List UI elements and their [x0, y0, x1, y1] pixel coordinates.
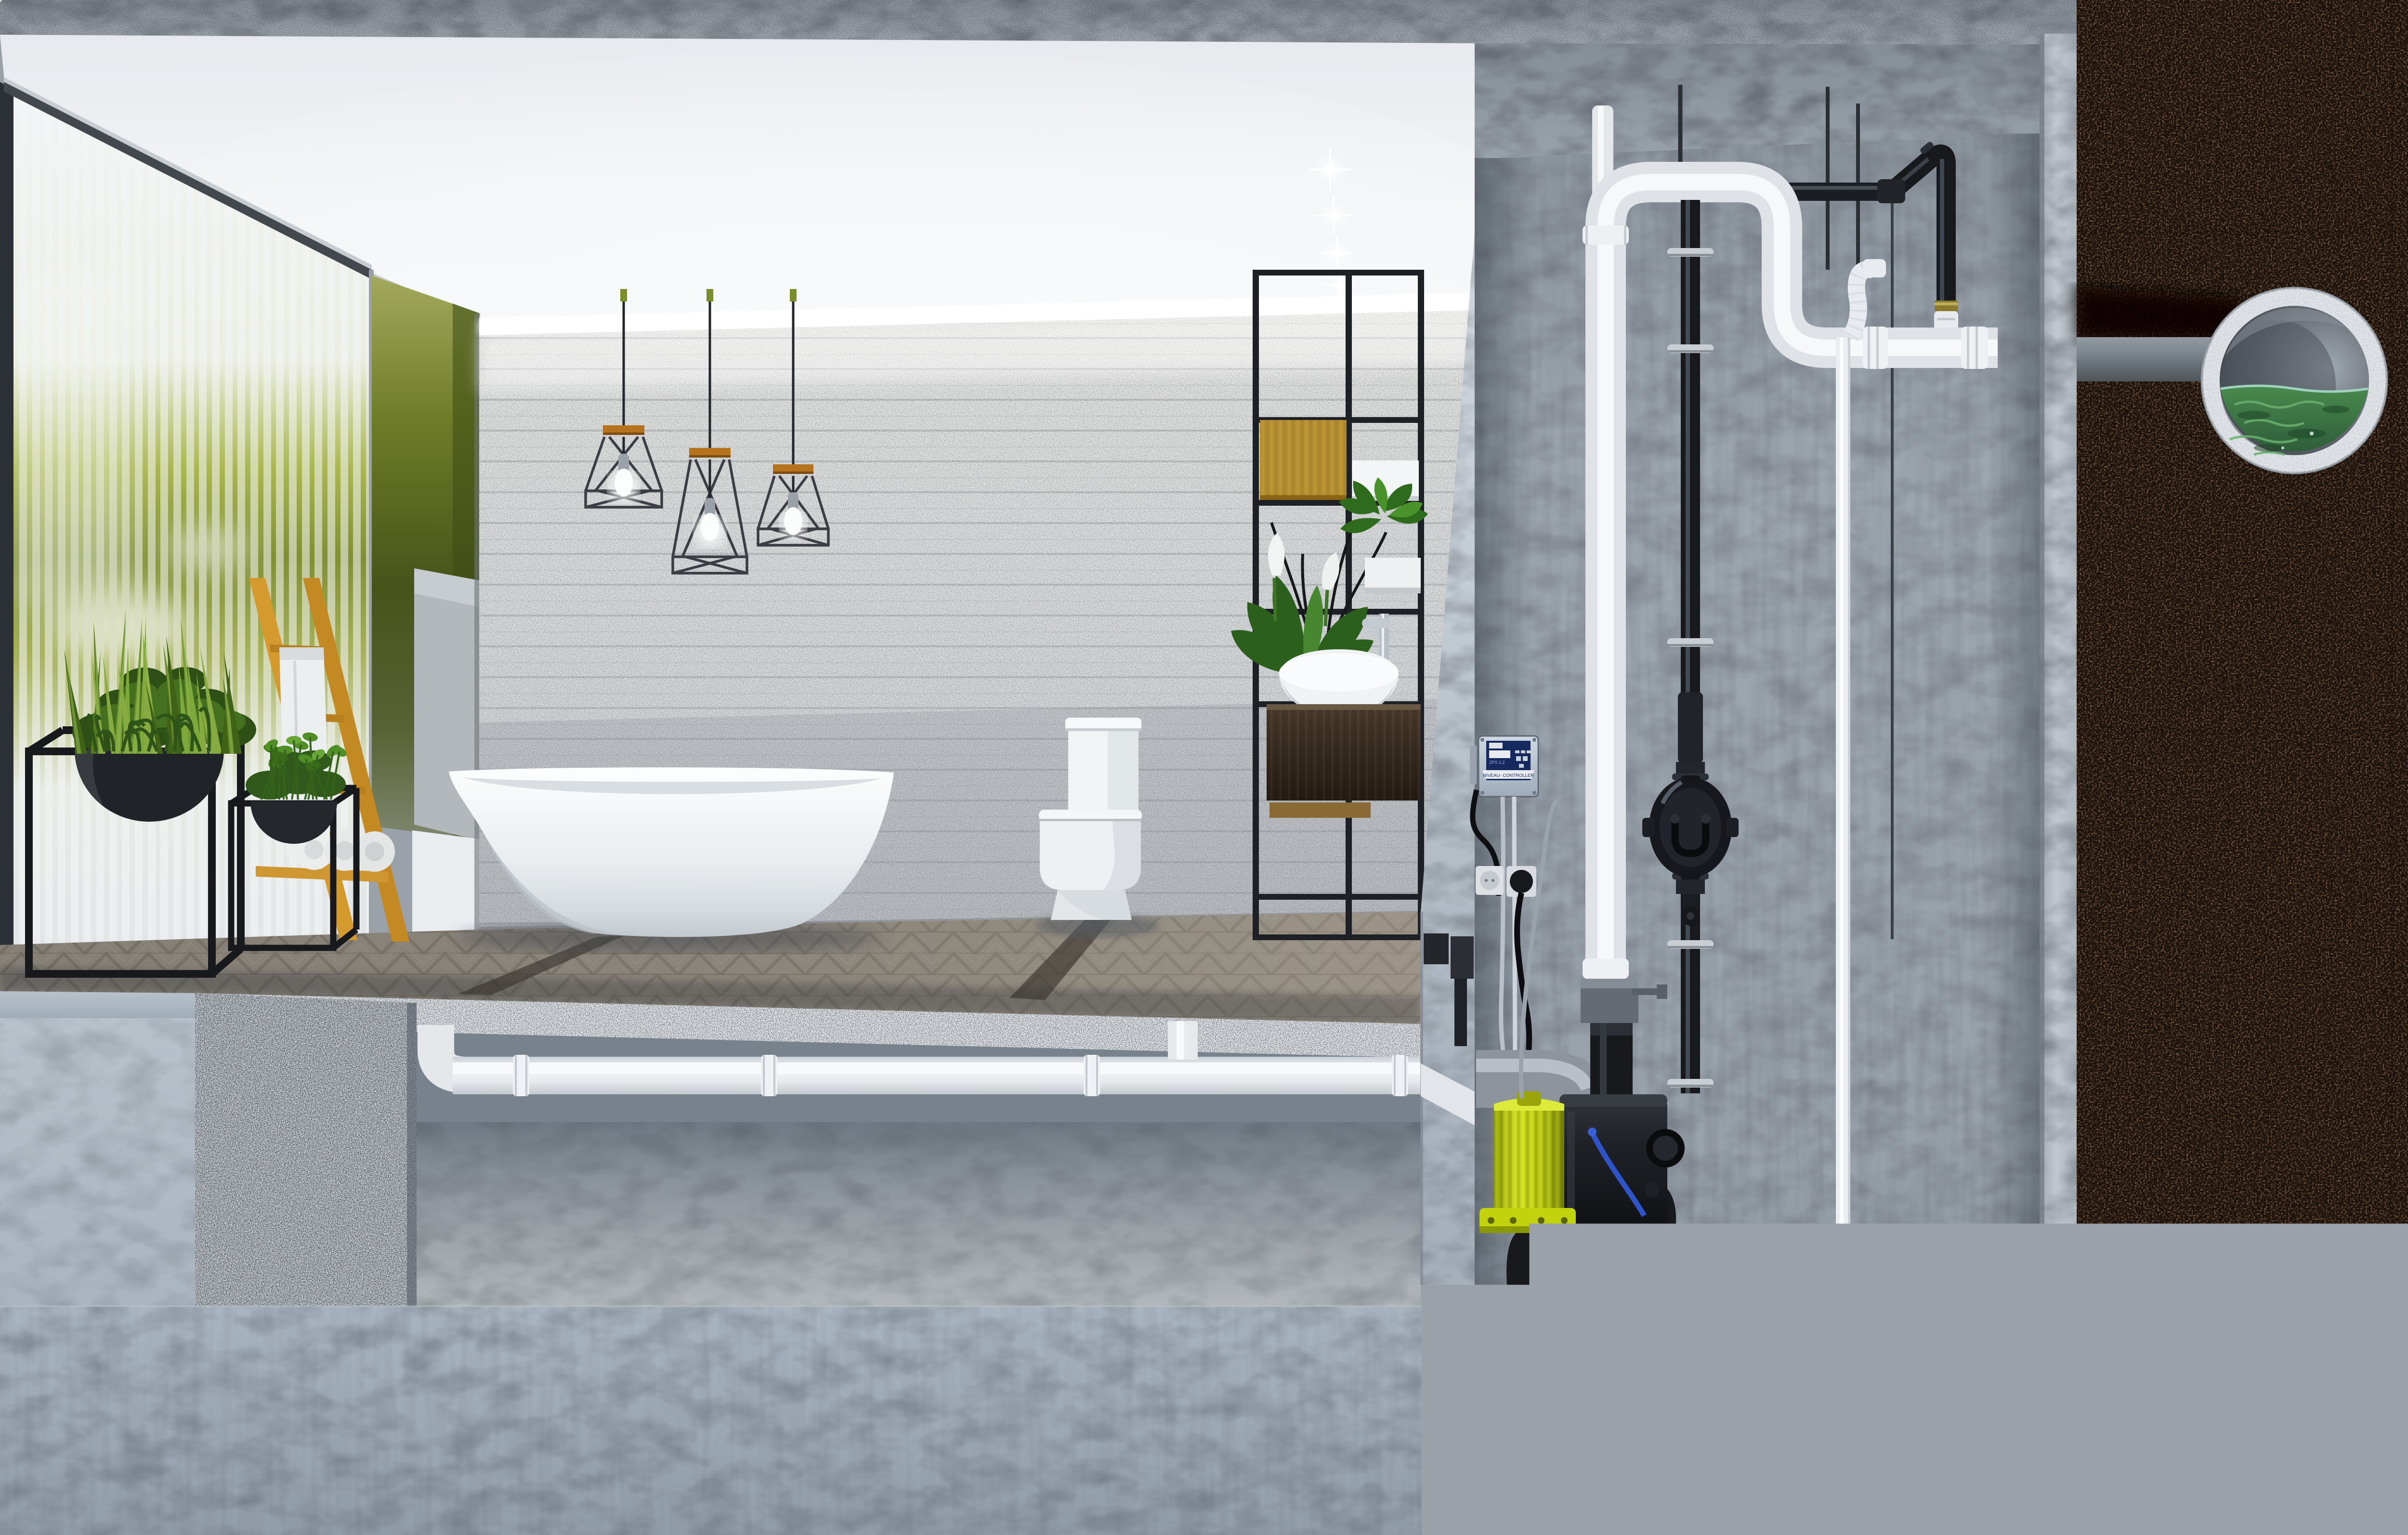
svg-text:PUMPEN: PUMPEN	[1832, 1404, 1872, 1412]
svg-text:ZPS 1.2: ZPS 1.2	[1489, 760, 1505, 765]
svg-text:NIVEAU- CONTROLLER: NIVEAU- CONTROLLER	[1483, 773, 1534, 778]
